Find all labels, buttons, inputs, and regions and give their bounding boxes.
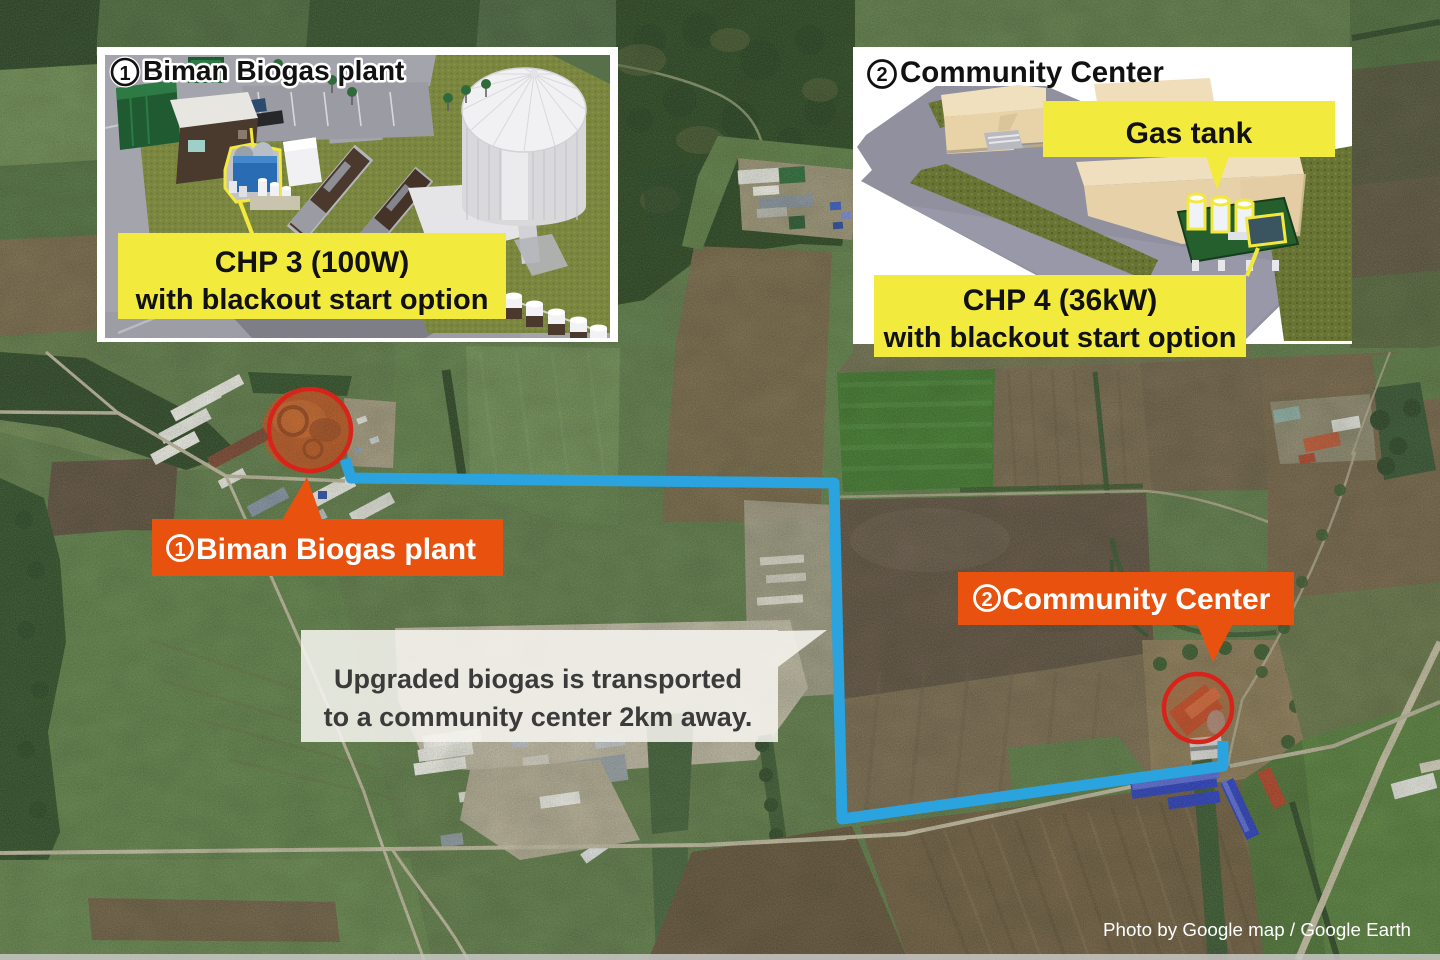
svg-text:with blackout start option: with blackout start option — [883, 322, 1237, 354]
svg-text:Upgraded biogas is transported: Upgraded biogas is transported — [334, 664, 742, 694]
svg-text:2: 2 — [981, 589, 992, 611]
svg-text:2: 2 — [876, 64, 887, 86]
svg-text:Biman Biogas plant: Biman Biogas plant — [143, 55, 404, 86]
svg-text:Gas tank: Gas tank — [1126, 117, 1253, 150]
svg-text:to a community center 2km away: to a community center 2km away. — [324, 702, 753, 732]
svg-text:Community Center: Community Center — [1002, 583, 1271, 616]
svg-text:CHP 3 (100W): CHP 3 (100W) — [215, 246, 410, 279]
svg-text:with blackout start option: with blackout start option — [135, 284, 489, 316]
svg-text:1: 1 — [174, 539, 185, 561]
svg-text:1: 1 — [119, 63, 130, 85]
svg-text:Photo by Google map / Google E: Photo by Google map / Google Earth — [1103, 919, 1411, 940]
svg-text:Community Center: Community Center — [900, 56, 1164, 89]
svg-text:Biman Biogas plant: Biman Biogas plant — [196, 533, 476, 566]
svg-text:CHP 4 (36kW): CHP 4 (36kW) — [963, 284, 1158, 317]
